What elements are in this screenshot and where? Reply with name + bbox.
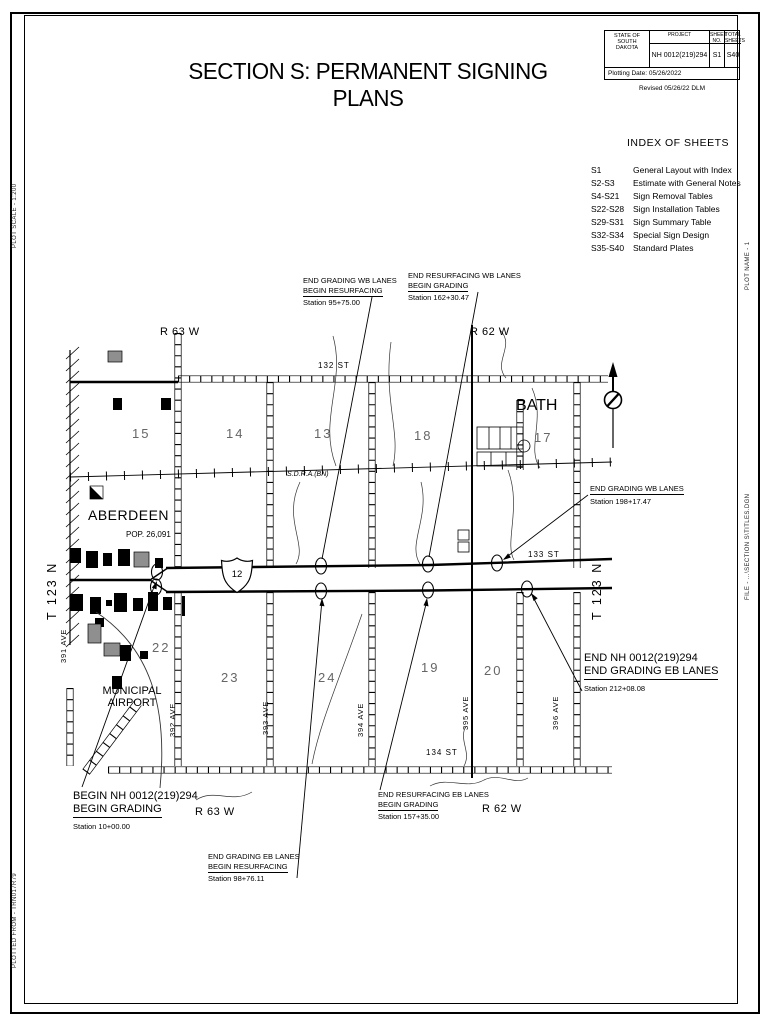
street-label-134-st: 134 ST (426, 748, 458, 757)
section-number-18: 18 (414, 428, 432, 443)
street-label-396-ave: 396 AVE (551, 696, 560, 730)
airport-label: MUNICIPAL AIRPORT (97, 685, 167, 709)
section-number-20: 20 (484, 663, 502, 678)
section-number-17: 17 (534, 430, 552, 445)
section-number-15: 15 (132, 426, 150, 441)
callout-end-grading-eb-begin-resurfacing: END GRADING EB LANES BEGIN RESURFACING S… (208, 852, 300, 884)
railroad-line (70, 462, 612, 477)
section-number-14: 14 (226, 426, 244, 441)
city-population: POP. 26,091 (126, 530, 171, 539)
callout-end-grading-wb-lanes: END GRADING WB LANES Station 198+17.47 (590, 484, 684, 506)
bath-town-blocks (458, 427, 530, 552)
range-label-top-right: R 62 W (470, 326, 510, 338)
plan-sheet: { "sheet": { "title": "SECTION S: PERMAN… (0, 0, 770, 1024)
section-number-23: 23 (221, 670, 239, 685)
north-arrow-icon (605, 362, 622, 448)
city-label-aberdeen: ABERDEEN (88, 507, 169, 523)
township-label-right: T 123 N (590, 562, 604, 620)
range-label-bottom-left: R 63 W (195, 806, 235, 818)
railroad-label: S.D.R.A.(BN) (287, 471, 329, 478)
section-number-19: 19 (421, 660, 439, 675)
street-label-395-ave: 395 AVE (461, 696, 470, 730)
street-label-132-st: 132 ST (318, 361, 350, 370)
street-label-392-ave: 392 AVE (168, 703, 177, 737)
section-number-24: 24 (318, 670, 336, 685)
range-label-top-left: R 63 W (160, 326, 200, 338)
township-label-left: T 123 N (45, 562, 59, 620)
callout-end-grading-wb-begin-resurfacing: END GRADING WB LANES BEGIN RESURFACING S… (303, 276, 397, 308)
callout-end-resurfacing-eb-begin-grading: END RESURFACING EB LANES BEGIN GRADING S… (378, 790, 489, 822)
street-label-394-ave: 394 AVE (356, 703, 365, 737)
us12-shield-number: 12 (229, 569, 245, 580)
callout-begin-project: BEGIN NH 0012(219)294 BEGIN GRADING Stat… (73, 790, 198, 833)
street-label-133-st: 133 ST (528, 550, 560, 559)
callout-end-resurfacing-wb-begin-grading: END RESURFACING WB LANES BEGIN GRADING S… (408, 271, 521, 303)
callout-end-project: END NH 0012(219)294 END GRADING EB LANES… (584, 652, 718, 695)
town-label-bath: BATH (516, 397, 557, 415)
street-label-393-ave: 393 AVE (261, 701, 270, 735)
section-number-13: 13 (314, 426, 332, 441)
section-number-22: 22 (152, 640, 170, 655)
street-label-391-ave: 391 AVE (59, 629, 68, 663)
